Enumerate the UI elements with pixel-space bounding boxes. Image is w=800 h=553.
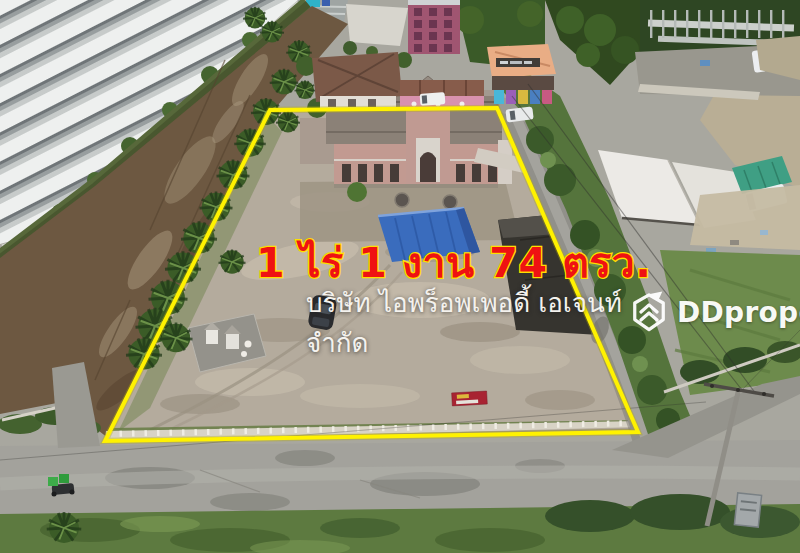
ddproperty-watermark: DDproperty (630, 291, 800, 333)
apartment-building (408, 0, 460, 54)
road-sign (734, 493, 761, 527)
company-name-line2: จำกัด (306, 323, 622, 363)
shophouse (487, 44, 556, 104)
company-name-line1: บริษัท ไอพร็อพเพอดี้ เอเจนท์ (306, 283, 622, 323)
banner (452, 391, 488, 406)
company-name: บริษัท ไอพร็อพเพอดี้ เอเจนท์ จำกัด (306, 283, 622, 363)
watermark-brand-text: DDproperty (677, 296, 800, 329)
listing-photo: 1 ไร่ 1 งาน 74 ตรว. บริษัท ไอพร็อพเพอดี้… (0, 0, 800, 553)
ddproperty-hexagon-chevron-icon (630, 291, 668, 333)
sandy-ground (690, 185, 800, 254)
